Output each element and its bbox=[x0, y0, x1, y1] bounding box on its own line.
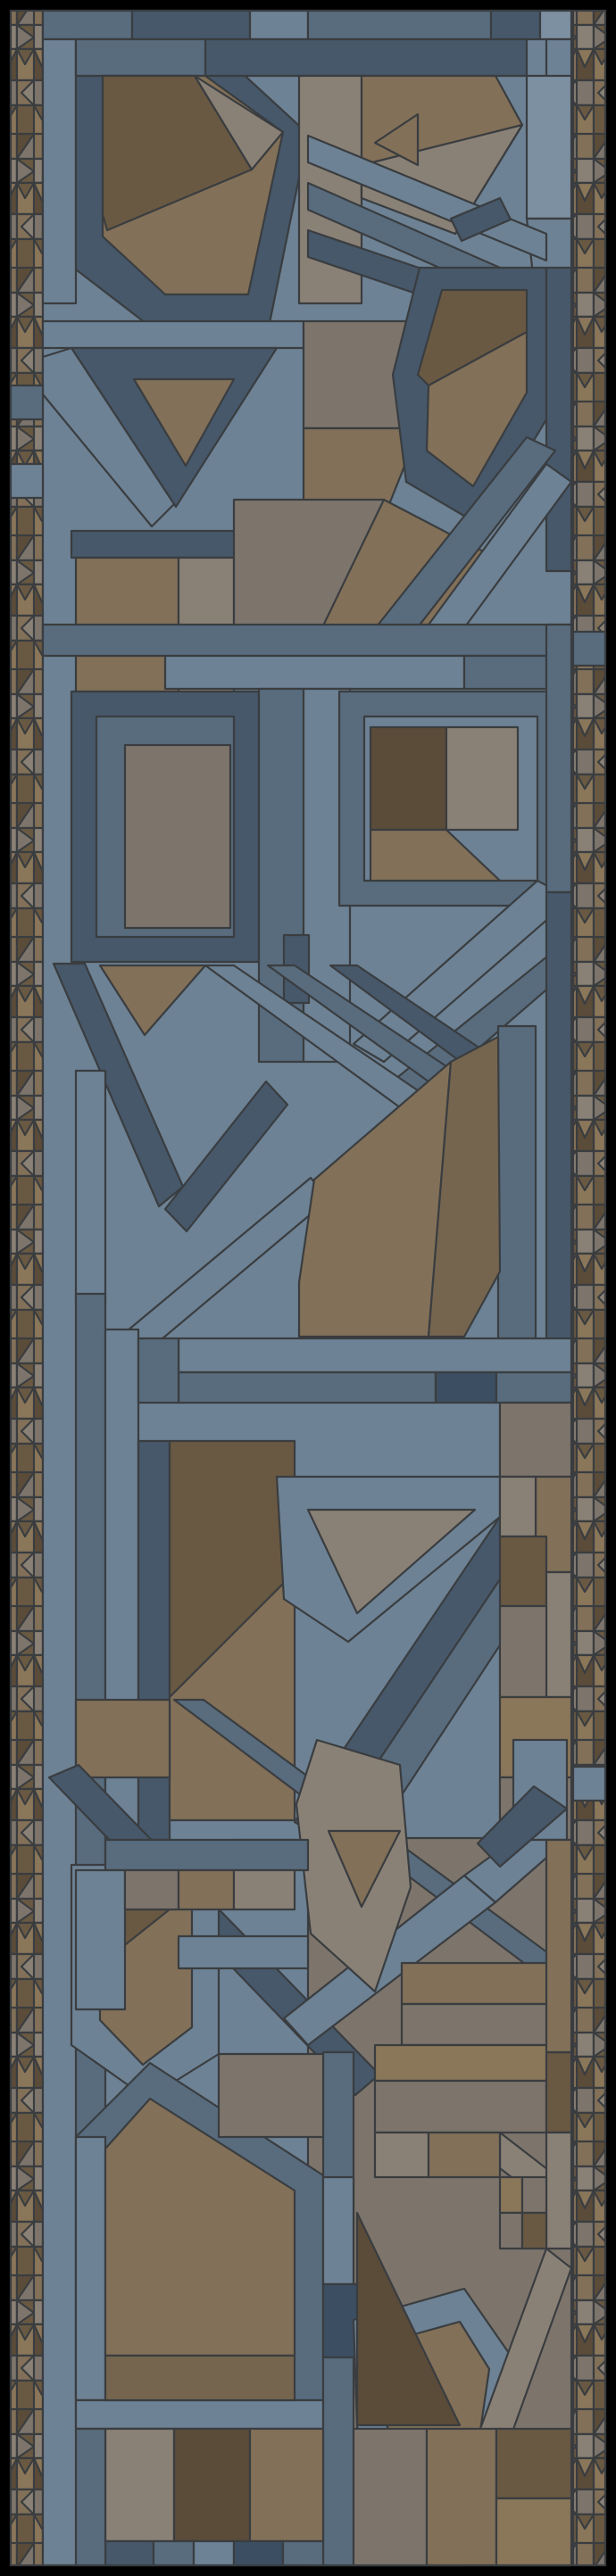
mosaic-tile bbox=[194, 2541, 234, 2565]
mosaic-tile bbox=[179, 1936, 308, 1968]
mosaic-tile bbox=[105, 2429, 174, 2541]
mosaic-tile bbox=[522, 2177, 546, 2213]
mosaic-tile bbox=[427, 2429, 496, 2565]
mosaic-tile bbox=[76, 2137, 105, 2400]
mosaic-tile bbox=[132, 11, 250, 39]
mosaic-tile bbox=[43, 39, 76, 303]
mosaic-tile bbox=[500, 1403, 571, 1477]
mosaic-tile bbox=[205, 39, 527, 76]
mosaic-tile bbox=[498, 1026, 536, 1338]
mosaic-tile bbox=[234, 2541, 283, 2565]
mosaic-tile bbox=[11, 385, 43, 419]
mosaic-tile bbox=[540, 11, 571, 39]
mosaic-tile bbox=[308, 11, 491, 39]
mosaic-shapes bbox=[11, 11, 605, 2565]
mosaic-tile bbox=[154, 2541, 194, 2565]
mosaic-tile bbox=[546, 1572, 571, 1697]
mosaic-tile bbox=[496, 2429, 571, 2498]
mosaic-tile bbox=[573, 632, 605, 666]
mosaic-tile bbox=[76, 2400, 323, 2429]
mosaic-tile bbox=[573, 1767, 605, 1801]
mosaic-artwork-stage bbox=[0, 0, 616, 2576]
mosaic-tile bbox=[138, 1338, 179, 1403]
mosaic-tile bbox=[174, 2429, 250, 2541]
mosaic-tile bbox=[76, 1870, 125, 2009]
mosaic-tile bbox=[375, 2081, 546, 2133]
mosaic-tile bbox=[11, 464, 43, 498]
mosaic-tile bbox=[219, 2054, 323, 2137]
mosaic-tile bbox=[500, 2177, 522, 2213]
mosaic-tile bbox=[500, 1536, 546, 1606]
mosaic-tile bbox=[354, 2429, 427, 2565]
mosaic-tile bbox=[375, 2133, 429, 2177]
mosaic-tile bbox=[43, 321, 304, 348]
mosaic-tile bbox=[491, 11, 540, 39]
mosaic-tile bbox=[179, 1870, 234, 1909]
mosaic-tile bbox=[464, 656, 546, 689]
mosaic-tile bbox=[283, 2541, 323, 2565]
mosaic-tile bbox=[76, 39, 205, 76]
mosaic-tile bbox=[138, 1441, 170, 1840]
mosaic-tile bbox=[179, 1338, 571, 1372]
mosaic-tile bbox=[546, 625, 571, 892]
mosaic-tile bbox=[323, 2177, 354, 2284]
mosaic-tile bbox=[527, 76, 571, 219]
mosaic-tile bbox=[546, 1840, 571, 2052]
mosaic-tile bbox=[370, 727, 446, 830]
mosaic-tile bbox=[446, 727, 518, 830]
mosaic-tile bbox=[546, 2133, 571, 2249]
mosaic-tile bbox=[125, 1870, 179, 1909]
mosaic-tile bbox=[250, 2429, 323, 2541]
mosaic-tile bbox=[76, 1071, 105, 1303]
mosaic-tile bbox=[496, 2498, 571, 2565]
mosaic-tile bbox=[43, 11, 132, 39]
mosaic-tile bbox=[76, 2429, 105, 2565]
right-border-strip bbox=[573, 11, 605, 2565]
mosaic-tile bbox=[500, 2213, 522, 2249]
mosaic-artwork bbox=[0, 0, 616, 2576]
mosaic-tile bbox=[71, 531, 259, 558]
mosaic-tile bbox=[500, 1477, 536, 1536]
mosaic-tile bbox=[179, 1372, 436, 1403]
mosaic-tile bbox=[76, 1700, 170, 1777]
mosaic-tile bbox=[546, 2052, 571, 2133]
mosaic-tile bbox=[496, 1372, 571, 1403]
mosaic-tile bbox=[250, 11, 308, 39]
mosaic-tile bbox=[436, 1372, 496, 1403]
mosaic-tile bbox=[165, 656, 464, 689]
mosaic-tile bbox=[522, 2213, 546, 2249]
mosaic-tile bbox=[125, 745, 230, 928]
mosaic-tile bbox=[234, 1870, 295, 1909]
mosaic-tile bbox=[546, 268, 571, 571]
mosaic-tile bbox=[105, 2356, 295, 2400]
mosaic-tile bbox=[375, 2045, 571, 2081]
mosaic-tile bbox=[43, 625, 571, 656]
mosaic-tile bbox=[105, 1840, 308, 1870]
mosaic-tile bbox=[105, 2541, 154, 2565]
mosaic-tile bbox=[429, 2133, 500, 2177]
mosaic-tile bbox=[500, 1606, 546, 1697]
